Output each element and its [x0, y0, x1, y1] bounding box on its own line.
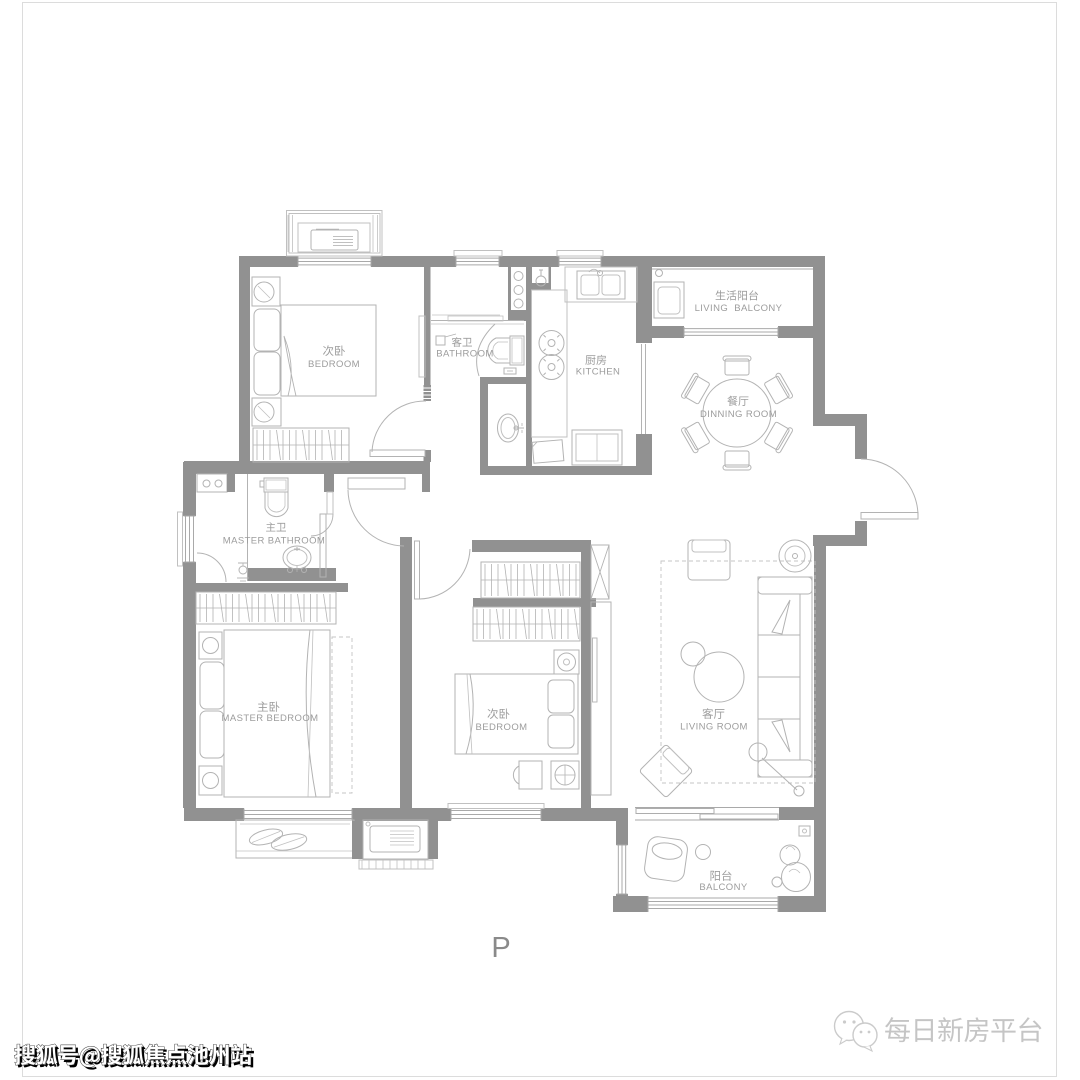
svg-text:BATHROOM: BATHROOM	[436, 349, 493, 360]
svg-text:MASTER BATHROOM: MASTER BATHROOM	[223, 536, 325, 547]
svg-text:BALCONY: BALCONY	[699, 882, 747, 893]
svg-text:BEDROOM: BEDROOM	[308, 359, 360, 370]
svg-text:KITCHEN: KITCHEN	[576, 367, 621, 378]
svg-text:MASTER BEDROOM: MASTER BEDROOM	[222, 713, 319, 724]
svg-text:BEDROOM: BEDROOM	[476, 722, 528, 733]
svg-text:LIVING BALCONY: LIVING BALCONY	[695, 303, 783, 314]
svg-text:DINNING ROOM: DINNING ROOM	[700, 409, 777, 420]
svg-text:LIVING ROOM: LIVING ROOM	[680, 722, 748, 733]
svg-text:P: P	[491, 932, 510, 964]
